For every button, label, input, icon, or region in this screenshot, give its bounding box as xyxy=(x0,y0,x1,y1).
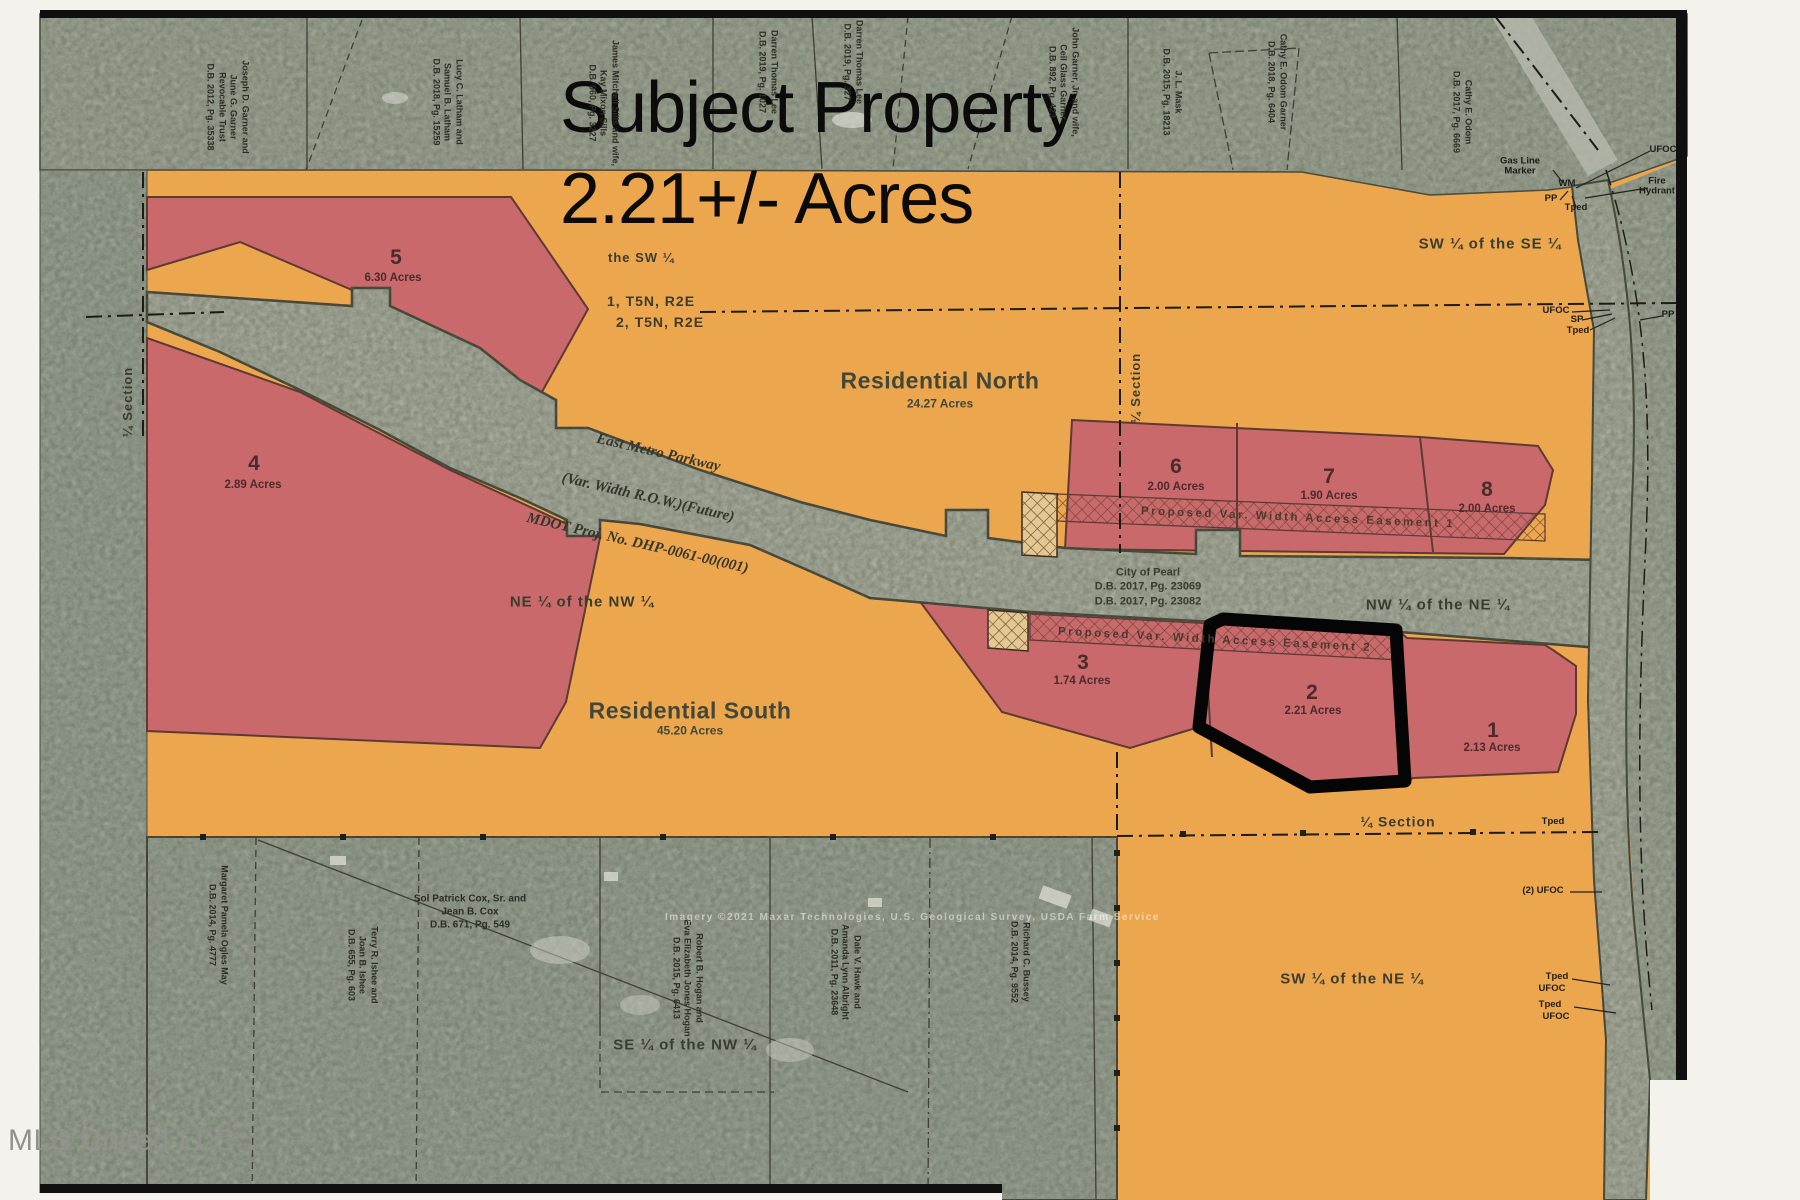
quarter-section-label-mid: ¼ Section xyxy=(1128,353,1144,423)
wm-label: WM xyxy=(1559,179,1576,189)
pp-label-top: PP xyxy=(1545,194,1558,204)
parcel-5-number: 5 xyxy=(390,245,402,271)
owner-label-garner-jr: John Garner, Jr. and wife, Ceil Glass Ga… xyxy=(1045,27,1080,137)
parcel-7-number: 7 xyxy=(1323,464,1335,490)
parcel-2-number-subject: 2 xyxy=(1306,680,1318,706)
section-1-label: 1, T5N, R2E xyxy=(607,293,695,311)
owner-label-hogan: Robert B. Hogan and Eva Elizabeth Jones … xyxy=(669,919,704,1036)
owner-label-lee-2: Darren Thomas Lee D.B. 2019, Pg. 327 xyxy=(841,20,864,104)
owner-label-odom: Cathy E. Odom D.B. 2017, Pg. 6669 xyxy=(1450,71,1473,153)
ufoc-label-b2: UFOC xyxy=(1543,1012,1570,1022)
ufoc-label-mid: UFOC xyxy=(1543,306,1570,316)
parcel-8-acres: 2.00 Acres xyxy=(1458,502,1515,516)
quarter-sw-ne: SW ¼ of the NE ¼ xyxy=(1280,971,1424,990)
residential-south-label: Residential South xyxy=(589,697,792,726)
aerial-bottom-strip xyxy=(147,837,1117,1200)
plat-map-page: Subject Property 2.21+/- Acres the SW ¼ … xyxy=(0,0,1800,1200)
residential-north-acres: 24.27 Acres xyxy=(907,397,973,412)
owner-label-latham: Lucy C. Latham and Samuel B. Latham D.B.… xyxy=(429,58,464,145)
easement-2-hatch-fill xyxy=(988,610,1028,651)
gas-line-marker-label: Gas Line Marker xyxy=(1500,157,1540,178)
parcel-8-number: 8 xyxy=(1481,477,1493,503)
bottom-border xyxy=(40,1184,1002,1193)
parcel-6-number: 6 xyxy=(1170,454,1182,480)
parcel-5-acres: 6.30 Acres xyxy=(364,271,421,285)
tped-label-b2: Tped xyxy=(1539,1000,1562,1010)
imagery-credit: Imagery ©2021 Maxar Technologies, U.S. G… xyxy=(665,912,1160,925)
parcel-2-acres-subject: 2.21 Acres xyxy=(1284,704,1341,718)
owner-label-garner-trust: Joseph D. Garner and June G. Garner Revo… xyxy=(204,60,251,154)
tped-label-mid: Tped xyxy=(1567,326,1590,336)
pp-label-mid: PP xyxy=(1662,310,1675,320)
ufoc-label-top: UFOC xyxy=(1650,145,1677,155)
parcel-3-number: 3 xyxy=(1077,650,1089,676)
parcel-3-acres: 1.74 Acres xyxy=(1053,674,1110,688)
tped-label-b1: Tped xyxy=(1546,972,1569,982)
tped-label-top: Tped xyxy=(1565,203,1588,213)
bottom-margin xyxy=(0,1193,1002,1200)
quarter-nw-ne: NW ¼ of the NE ¼ xyxy=(1366,597,1510,616)
annotation-title-line1: Subject Property xyxy=(560,72,1076,144)
ufoc-2-label: (2) UFOC xyxy=(1522,886,1563,896)
owner-label-mask: J. L. Mask D.B. 2015, Pg. 18213 xyxy=(1160,48,1183,135)
quarter-section-label-right: ¼ Section xyxy=(1360,813,1435,831)
owner-label-cox: Sol Patrick Cox, Sr. and Jean B. Cox D.B… xyxy=(414,893,526,932)
residential-north-label: Residential North xyxy=(841,367,1040,396)
quarter-sw-se: SW ¼ of the SE ¼ xyxy=(1419,236,1562,255)
sp-label: SP xyxy=(1571,315,1584,325)
owner-label-ishee: Terry R. Ishee and Joan B. Ishee D.B. 65… xyxy=(344,926,379,1003)
section-2-label: 2, T5N, R2E xyxy=(616,314,704,332)
owner-label-bussey: Richard C. Bussey D.B. 2014, Pg. 9552 xyxy=(1008,921,1031,1003)
city-of-pearl-note: City of Pearl D.B. 2017, Pg. 23069 D.B. … xyxy=(1095,566,1201,609)
parcel-4-number: 4 xyxy=(248,451,260,477)
residential-south-acres: 45.20 Acres xyxy=(657,724,723,739)
parcel-6-acres: 2.00 Acres xyxy=(1147,480,1204,494)
corner-margin xyxy=(1650,1080,1800,1200)
quarter-se-nw: SE ¼ of the NW ¼ xyxy=(613,1037,757,1056)
parcel-1-acres: 2.13 Acres xyxy=(1463,741,1520,755)
fire-hydrant-label: Fire Hydrant xyxy=(1639,177,1675,198)
aerial-left-strip xyxy=(40,170,147,1200)
section-label-sw: the SW ¼ xyxy=(608,250,675,266)
mls-watermark: MLS United LLC xyxy=(8,1122,235,1160)
owner-label-odom-garner: Cathy E. Odom Garner D.B. 2018, Pg. 6404 xyxy=(1265,34,1288,131)
owner-label-hawk: Dale V. Hawk and Amanda Lynn Albright D.… xyxy=(827,924,862,1020)
ufoc-label-b1: UFOC xyxy=(1539,984,1566,994)
tped-label-quarter: Tped xyxy=(1542,817,1565,827)
quarter-section-label-left: ¼ Section xyxy=(120,367,136,437)
quarter-ne-nw: NE ¼ of the NW ¼ xyxy=(510,594,654,613)
parcel-4-acres: 2.89 Acres xyxy=(224,478,281,492)
easement-1-hatch-fill xyxy=(1022,492,1057,557)
right-border xyxy=(1676,14,1687,1080)
top-border xyxy=(40,10,1687,18)
annotation-title-line2: 2.21+/- Acres xyxy=(560,163,973,235)
owner-label-lee-1: Darren Thomas Lee D.B. 2019, Pg. 1027 xyxy=(756,30,779,114)
owner-label-may: Margaret Pamela Ogles May D.B. 2014, Pg.… xyxy=(206,865,229,985)
owner-label-sills: James Mitchell Sills and wife, Kay Mixon… xyxy=(585,40,620,166)
parcel-7-acres: 1.90 Acres xyxy=(1300,489,1357,503)
